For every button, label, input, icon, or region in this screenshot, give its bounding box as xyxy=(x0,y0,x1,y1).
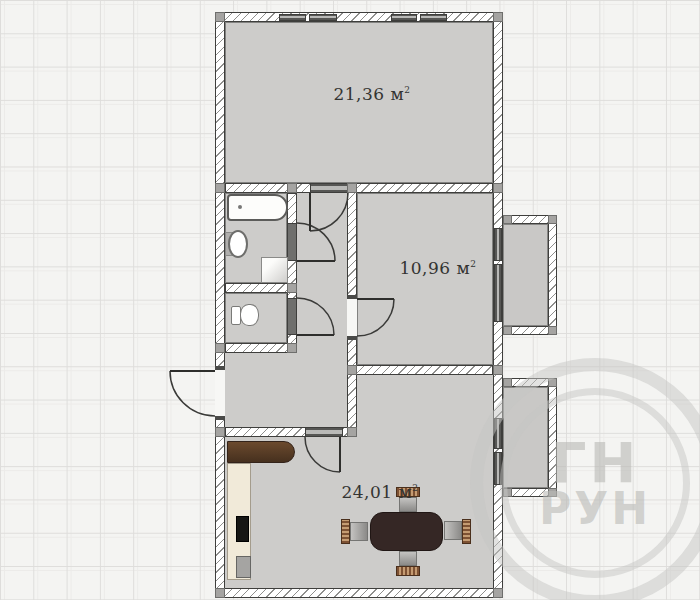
room-area-label: 10,96 м2 xyxy=(368,258,508,278)
door-arc-room-middle xyxy=(357,299,394,336)
door-arc-entrance xyxy=(170,371,215,416)
door-arc-kitchen xyxy=(305,437,340,472)
room-area-label: 21,36 м2 xyxy=(302,84,442,104)
door-arc-room-large xyxy=(310,193,348,231)
door-arc-toilet xyxy=(297,298,334,335)
room-area-label: 24,01 м2 xyxy=(310,482,450,502)
door-arc-bathroom xyxy=(297,223,335,261)
floor-plan: 21,36 м2 10,96 м2 24,01 м2 ГН РУН xyxy=(0,0,700,600)
